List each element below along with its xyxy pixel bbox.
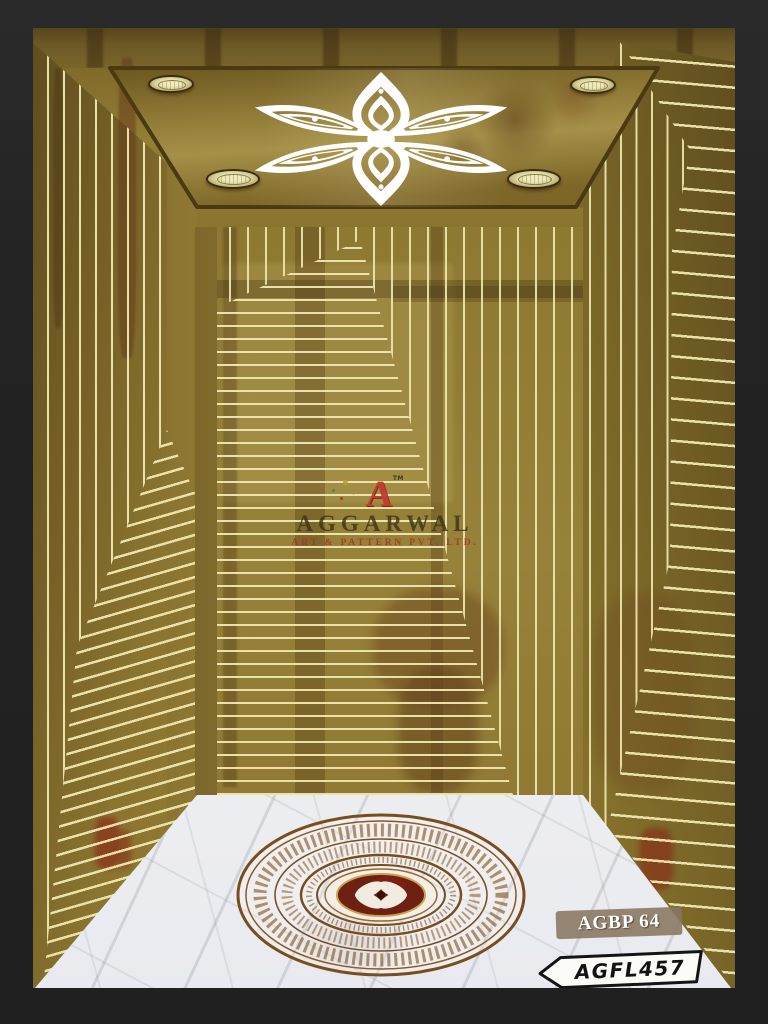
brand-watermark: ATM AGGARWAL ART & PATTERN PVT. LTD. [265,476,505,549]
brand-logo-icon: A [365,476,394,515]
floor-pattern-code-text: AGFL457 [572,955,686,984]
ceiling-light-icon [570,76,616,94]
flower-motif-icon [252,68,510,206]
ceiling-light-icon [148,75,194,93]
trademark-mark: TM [393,475,404,482]
elevator-cabin-scene: ATM AGGARWAL ART & PATTERN PVT. LTD. AGB… [33,28,735,988]
floor-medallion-icon [235,812,527,978]
wall-pattern-code-badge: AGBP 64 [556,907,683,939]
brand-subtitle: ART & PATTERN PVT. LTD. [265,539,505,549]
floor-pattern-code-plate: AGFL457 [536,948,707,988]
ceiling-light-icon [507,169,561,189]
sparkle-icon [343,480,348,485]
brand-name: AGGARWAL [265,512,505,536]
catalog-image: ATM AGGARWAL ART & PATTERN PVT. LTD. AGB… [0,0,768,1024]
